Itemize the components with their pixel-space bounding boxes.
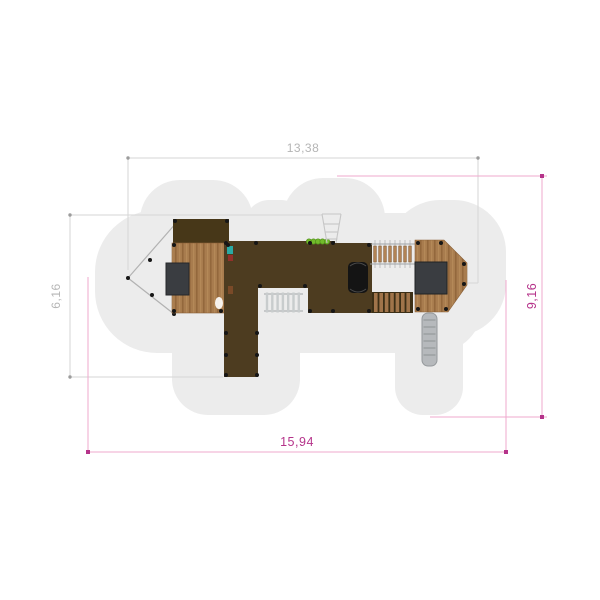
tower-roof	[173, 219, 229, 243]
brown-accessory	[228, 286, 233, 294]
middle-deck	[308, 241, 335, 313]
right-tower-panel	[415, 262, 447, 294]
plan-drawing-canvas: 13,38 6,16 15,94 9,16	[0, 0, 600, 600]
red-accessory	[228, 255, 233, 261]
equipment-depth-label: 6,16	[49, 283, 63, 308]
safety-depth-label: 9,16	[525, 283, 539, 309]
left-panel	[166, 263, 189, 295]
bridge-deck	[258, 241, 308, 288]
slide	[422, 313, 437, 366]
crawl-tube	[348, 262, 368, 293]
teal-accessory	[227, 246, 233, 254]
plan-drawing: 13,38 6,16 15,94 9,16	[0, 0, 600, 600]
equipment-width-label: 13,38	[287, 141, 320, 155]
wooden-stairs	[372, 292, 413, 313]
walkway-down	[224, 241, 258, 377]
safety-width-label: 15,94	[280, 435, 314, 449]
wheel-accessory	[215, 297, 223, 309]
